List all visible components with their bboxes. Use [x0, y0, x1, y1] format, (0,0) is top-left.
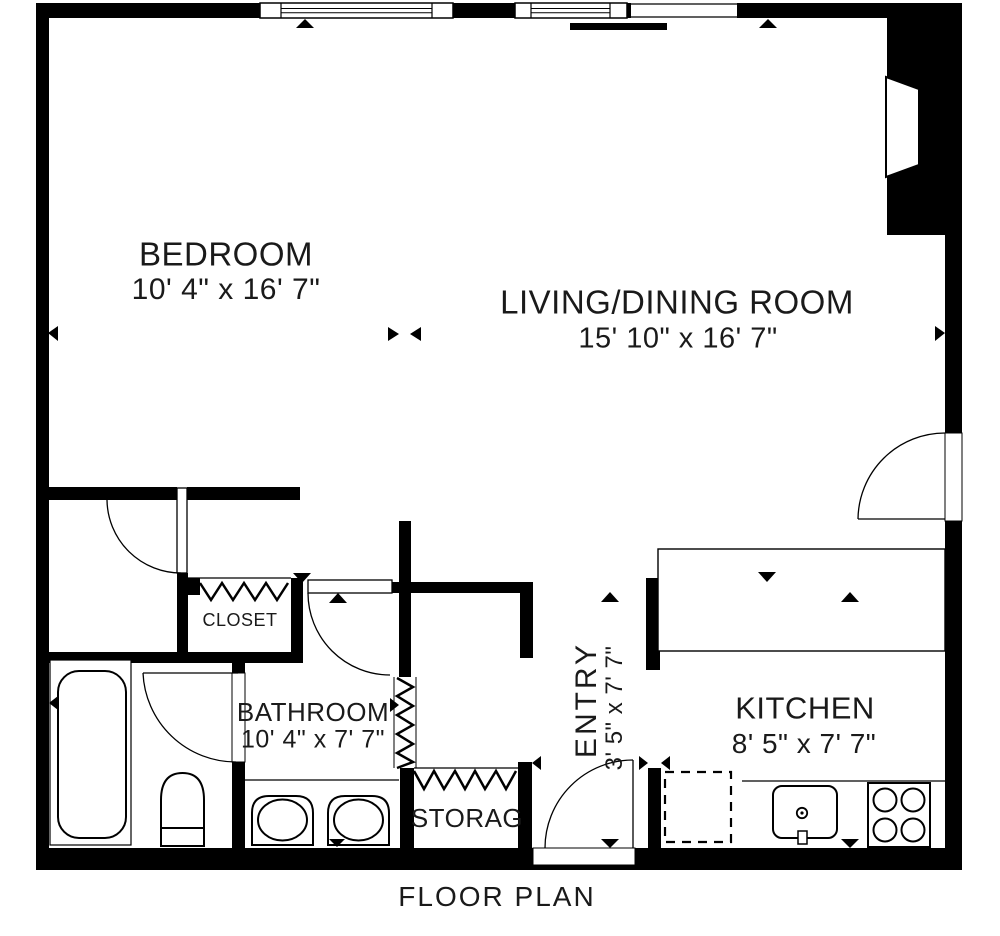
window-living-icon	[515, 3, 631, 18]
kitchen-sink-icon	[773, 786, 837, 844]
arrow-left-icon	[48, 326, 58, 341]
bathroom-door-icon	[308, 580, 392, 675]
bedroom-dimensions: 10' 4" x 16' 7"	[132, 275, 321, 305]
bedroom-label: BEDROOM	[139, 238, 313, 271]
arrow-right-icon	[935, 326, 945, 341]
entry-door-icon	[533, 760, 635, 865]
wall-top-right	[737, 3, 962, 18]
arrow-left-icon	[661, 756, 670, 770]
arrow-up-icon	[296, 19, 314, 28]
arrow-up-icon	[601, 592, 619, 602]
arrow-left-icon	[410, 327, 421, 341]
page-title: FLOOR PLAN	[398, 883, 595, 911]
closet-rail-icon	[188, 578, 291, 600]
arrow-right-icon	[388, 327, 399, 341]
wall-top-mid	[453, 3, 515, 18]
wall-bedroom-south-b	[187, 487, 300, 500]
wall-closet-stub	[188, 578, 200, 595]
wall-bottom-left	[36, 848, 533, 870]
wall-closet-left	[177, 573, 188, 652]
living-dining-label: LIVING/DINING ROOM	[500, 286, 854, 319]
wall-bath-divider-bottom	[232, 762, 245, 848]
vanity-sink-left-icon	[252, 796, 313, 845]
sliding-door-panel-icon	[570, 23, 667, 30]
entry-label: ENTRY	[572, 642, 602, 758]
entry-dimensions: 3' 5" x 7' 7"	[603, 646, 627, 771]
toilet-room-door-icon	[143, 673, 245, 762]
stove-icon	[868, 783, 930, 847]
vanity-sink-right-icon	[328, 796, 389, 845]
wall-right-upper	[945, 235, 962, 433]
kitchen-peninsula-counter	[658, 549, 945, 651]
wall-bedroom-south-a	[36, 487, 177, 500]
wall-storage-right-upper	[520, 593, 533, 658]
wall-entry-horizontal	[392, 582, 533, 593]
arrow-down-icon	[841, 839, 859, 848]
bedroom-door-icon	[107, 488, 187, 573]
fireplace-icon	[886, 77, 919, 177]
wall-right-lower	[945, 521, 962, 870]
bathroom-label: BATHROOM	[237, 699, 389, 725]
arrow-up-icon	[759, 19, 777, 28]
arrow-right-icon	[639, 756, 648, 770]
toilet-icon	[161, 773, 204, 846]
wall-closet-right	[291, 578, 303, 663]
arrow-up-icon	[329, 593, 347, 603]
arrow-left-icon	[532, 756, 541, 770]
storage-label: STORAG	[411, 805, 523, 831]
living-dining-dimensions: 15' 10" x 16' 7"	[578, 325, 777, 354]
wall-bath-divider-top	[232, 663, 245, 673]
wall-kitchen-entry	[648, 768, 661, 848]
closet-label: CLOSET	[202, 611, 277, 629]
kitchen-dimensions: 8' 5" x 7' 7"	[732, 730, 876, 758]
refrigerator-dashed-icon	[665, 772, 731, 842]
arrow-down-icon	[601, 839, 619, 848]
bathroom-dimensions: 10' 4" x 7' 7"	[241, 728, 385, 753]
wall-left	[36, 3, 49, 870]
kitchen-label: KITCHEN	[735, 693, 875, 724]
window-bedroom-icon	[260, 3, 453, 18]
wall-top-left	[36, 3, 260, 18]
kitchen-fixtures	[665, 772, 945, 847]
bathtub-icon	[50, 660, 131, 845]
floor-plan-drawing	[0, 0, 1000, 936]
wall-bottom-right	[635, 848, 962, 870]
wall-bath-entry	[399, 521, 411, 677]
living-room-door-icon	[858, 433, 962, 521]
floor-plan: BEDROOM 10' 4" x 16' 7" LIVING/DINING RO…	[0, 0, 1000, 936]
storage-rail-icon	[414, 768, 518, 789]
vertical-rail-icon	[394, 677, 416, 768]
